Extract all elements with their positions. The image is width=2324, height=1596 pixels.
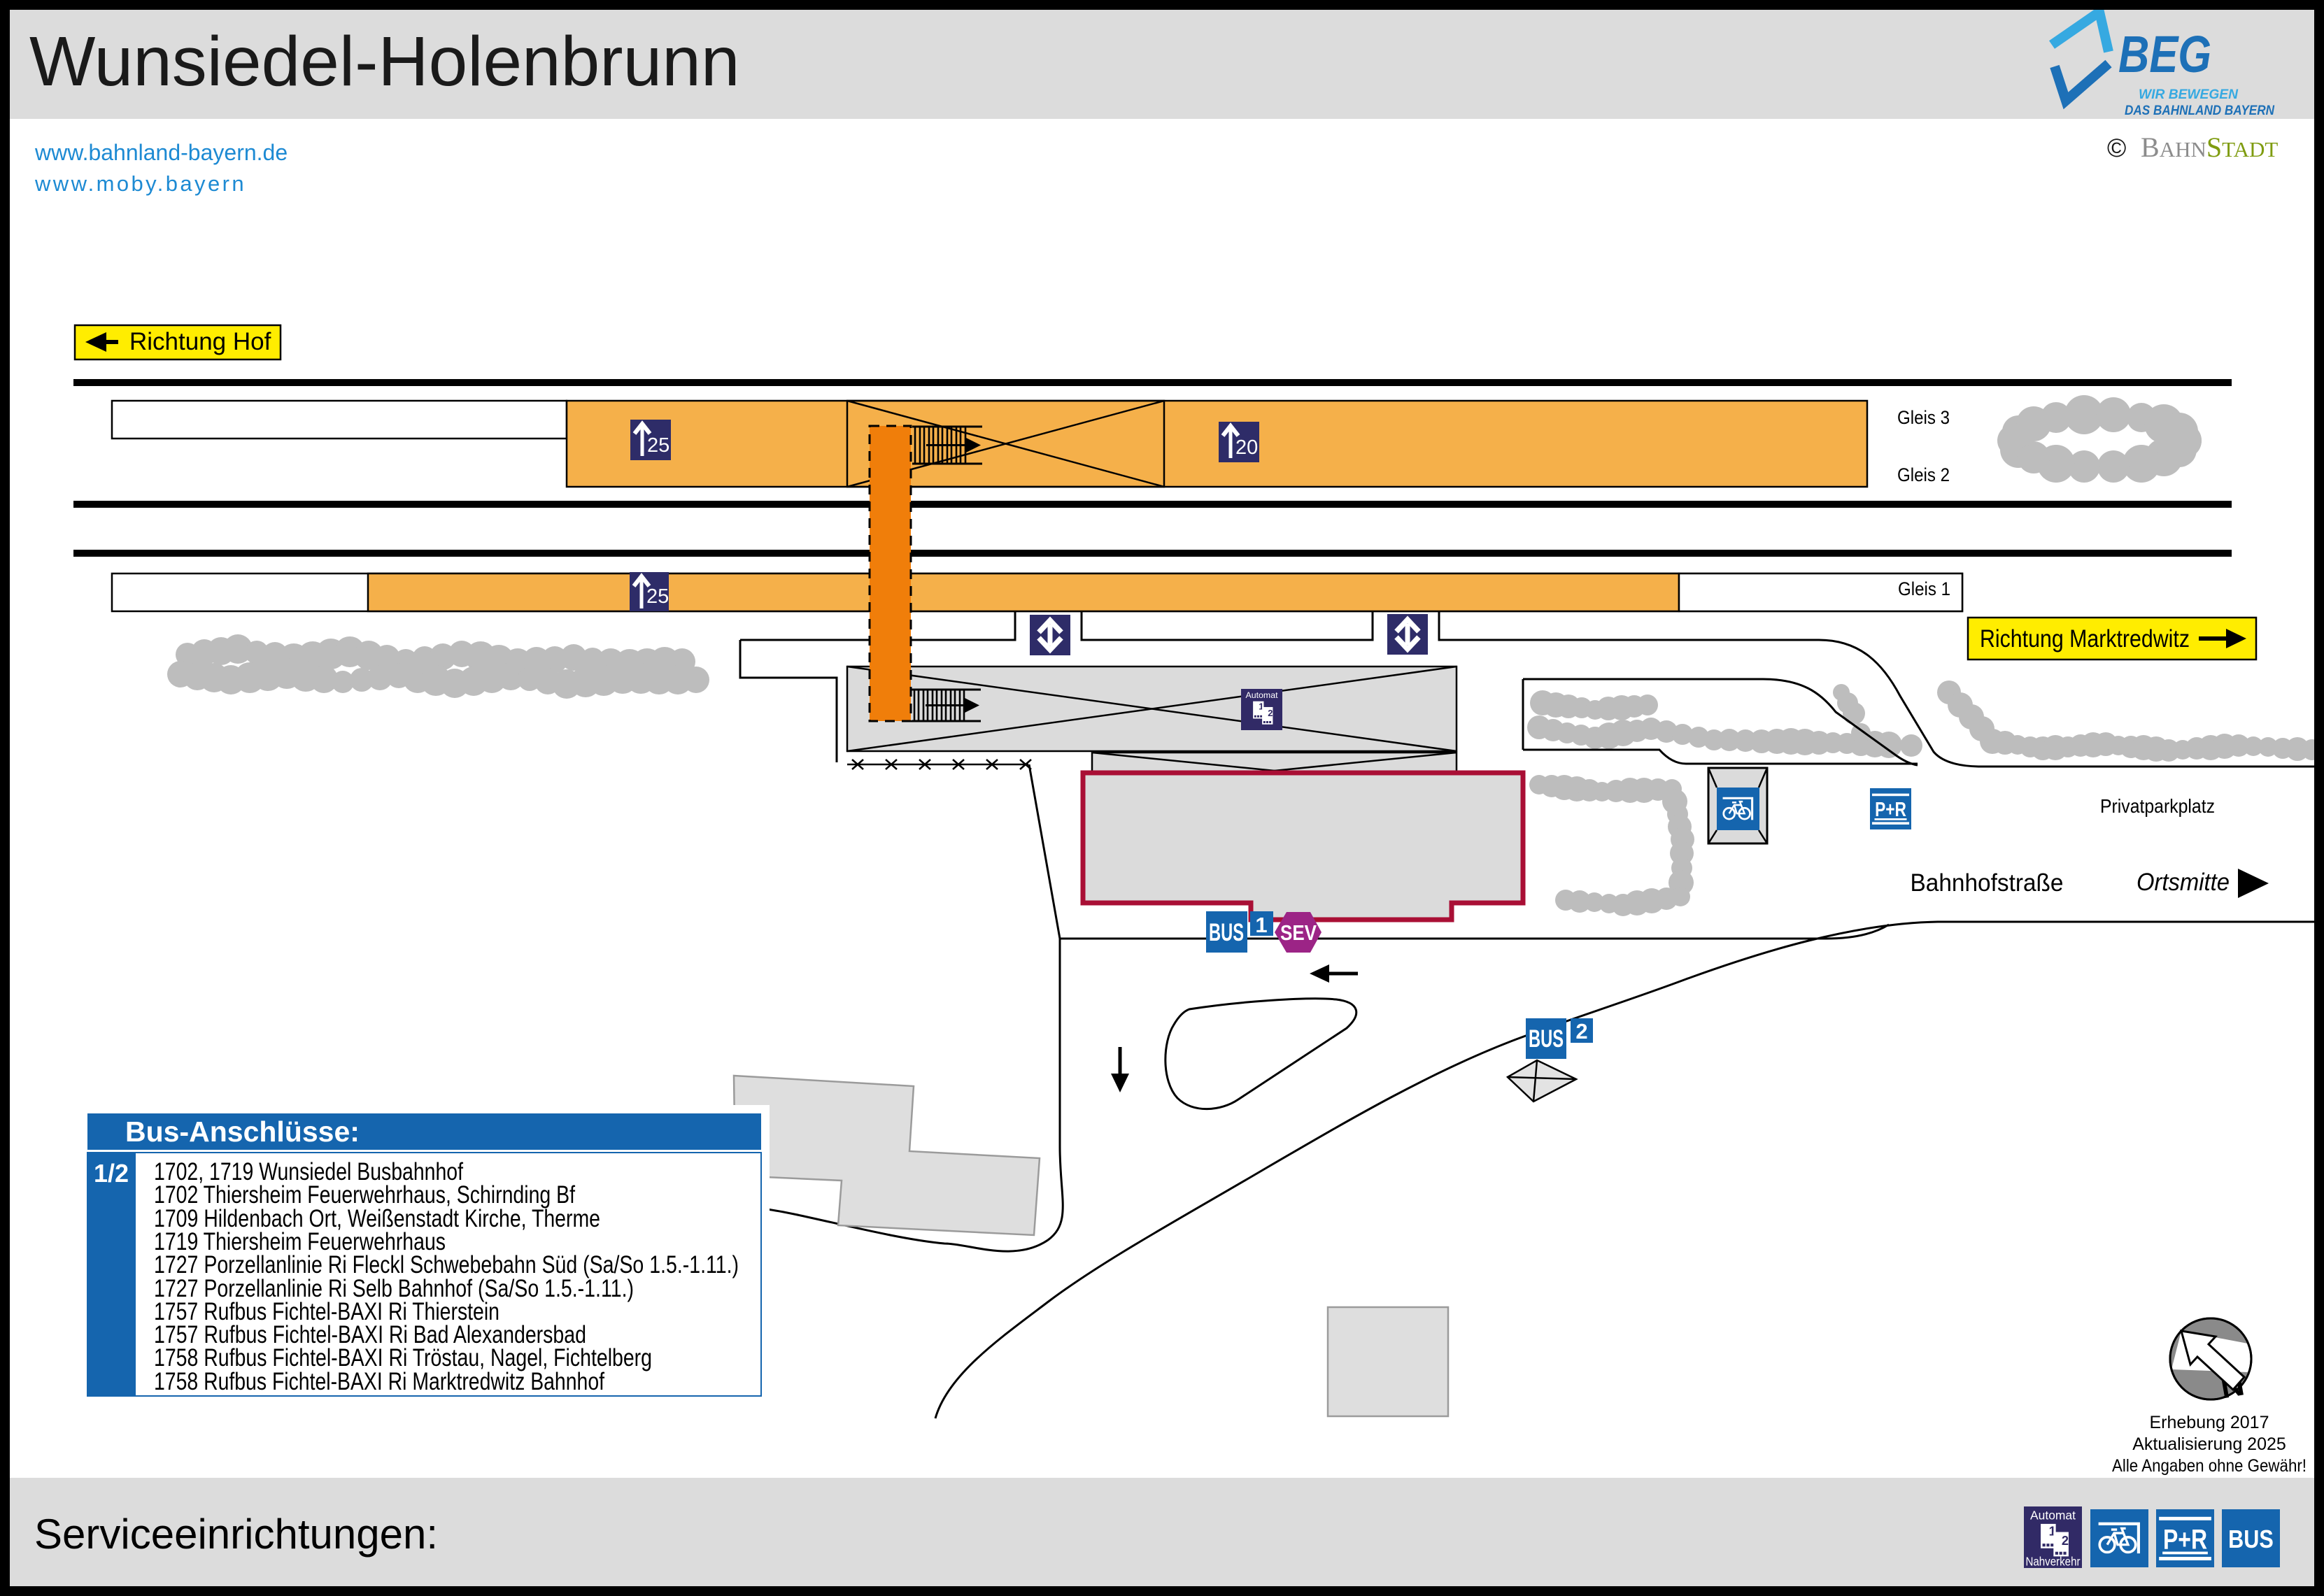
svg-text:1: 1 — [1255, 913, 1267, 937]
svg-text:Automat: Automat — [2030, 1508, 2076, 1522]
svg-text:Richtung Hof: Richtung Hof — [129, 328, 271, 355]
svg-text:BUS: BUS — [1529, 1025, 1564, 1053]
svg-text:BUS: BUS — [2228, 1525, 2274, 1553]
svg-text:Wunsiedel-Holenbrunn: Wunsiedel-Holenbrunn — [29, 22, 739, 101]
svg-text:Richtung Marktredwitz: Richtung Marktredwitz — [1980, 625, 2190, 653]
svg-text:P+R: P+R — [1875, 799, 1906, 821]
svg-text:2: 2 — [1268, 708, 1273, 718]
svg-text:SEV: SEV — [1280, 920, 1317, 945]
svg-text:25: 25 — [647, 434, 669, 457]
svg-text:Aktualisierung 2025: Aktualisierung 2025 — [2132, 1434, 2286, 1454]
svg-text:Privatparkplatz: Privatparkplatz — [2100, 795, 2215, 817]
svg-text:Automat: Automat — [1245, 690, 1278, 700]
svg-text:20: 20 — [1235, 436, 1258, 459]
svg-text:25: 25 — [646, 585, 669, 608]
svg-text:www.bahnland-bayern.de: www.bahnland-bayern.de — [34, 140, 288, 165]
svg-text:WIR BEWEGEN: WIR BEWEGEN — [2139, 87, 2239, 102]
svg-text:Gleis 3: Gleis 3 — [1897, 407, 1950, 428]
svg-text:www.moby.bayern: www.moby.bayern — [34, 171, 246, 196]
svg-text:Gleis 1: Gleis 1 — [1898, 578, 1950, 599]
svg-text:Gleis 2: Gleis 2 — [1897, 464, 1950, 485]
svg-text:2: 2 — [1575, 1019, 1587, 1043]
svg-text:Serviceeinrichtungen:: Serviceeinrichtungen: — [34, 1511, 438, 1558]
svg-text:Bahnhofstraße: Bahnhofstraße — [1911, 869, 2064, 897]
svg-text:DAS BAHNLAND BAYERN: DAS BAHNLAND BAYERN — [2125, 104, 2275, 118]
svg-text:BUS: BUS — [1209, 919, 1244, 946]
svg-text:Ortsmitte: Ortsmitte — [2137, 869, 2230, 896]
svg-text:P+R: P+R — [2163, 1524, 2207, 1555]
svg-text:2: 2 — [2062, 1533, 2069, 1548]
svg-text:©: © — [2107, 134, 2126, 162]
svg-text:Erhebung 2017: Erhebung 2017 — [2150, 1413, 2269, 1432]
svg-text:1/2: 1/2 — [94, 1159, 129, 1188]
svg-text:BEG: BEG — [2118, 25, 2211, 83]
svg-text:1758 Rufbus Fichtel-BAXI Ri Ma: 1758 Rufbus Fichtel-BAXI Ri Marktredwitz… — [154, 1368, 604, 1395]
svg-text:Bus-Anschlüsse:: Bus-Anschlüsse: — [125, 1116, 360, 1148]
svg-text:Nahverkehr: Nahverkehr — [2025, 1555, 2080, 1569]
svg-text:Alle Angaben ohne Gewähr!: Alle Angaben ohne Gewähr! — [2112, 1456, 2307, 1476]
